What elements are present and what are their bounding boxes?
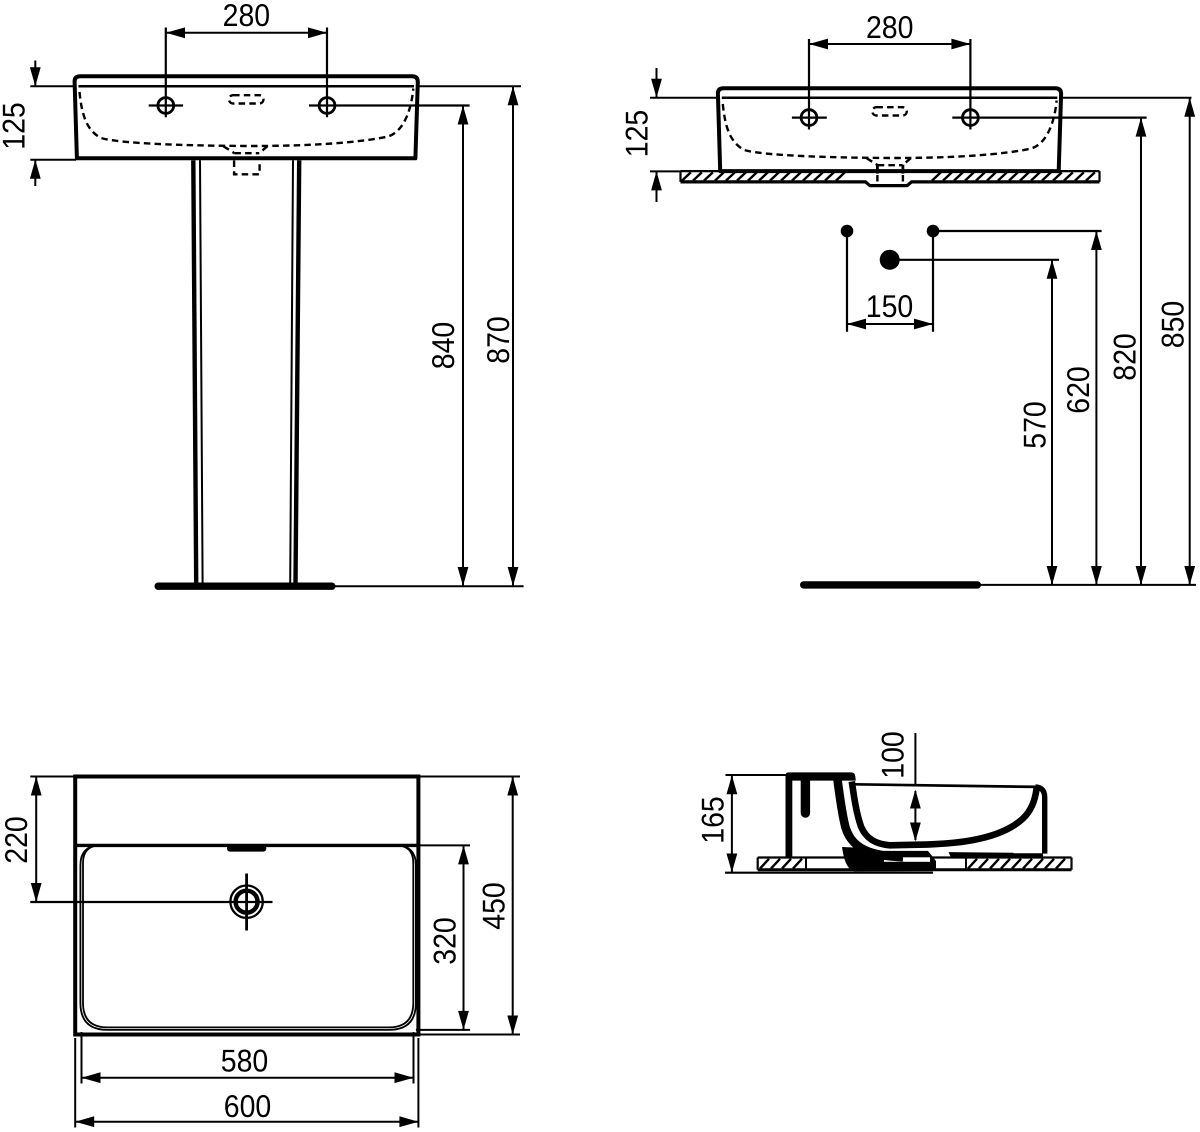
svg-text:150: 150	[866, 288, 914, 324]
svg-text:580: 580	[221, 1043, 269, 1079]
svg-text:280: 280	[223, 0, 271, 33]
svg-text:620: 620	[1060, 366, 1096, 414]
svg-text:100: 100	[875, 731, 911, 779]
svg-text:220: 220	[0, 816, 34, 864]
svg-text:450: 450	[476, 882, 512, 930]
svg-text:125: 125	[0, 102, 32, 150]
svg-text:600: 600	[224, 1088, 272, 1124]
svg-text:570: 570	[1017, 401, 1053, 449]
svg-text:280: 280	[866, 9, 914, 45]
svg-text:165: 165	[695, 796, 731, 844]
svg-text:125: 125	[619, 110, 655, 158]
svg-text:840: 840	[425, 322, 461, 370]
svg-text:820: 820	[1107, 333, 1143, 381]
svg-text:870: 870	[480, 316, 516, 364]
svg-text:850: 850	[1155, 301, 1191, 349]
svg-text:320: 320	[427, 917, 463, 965]
